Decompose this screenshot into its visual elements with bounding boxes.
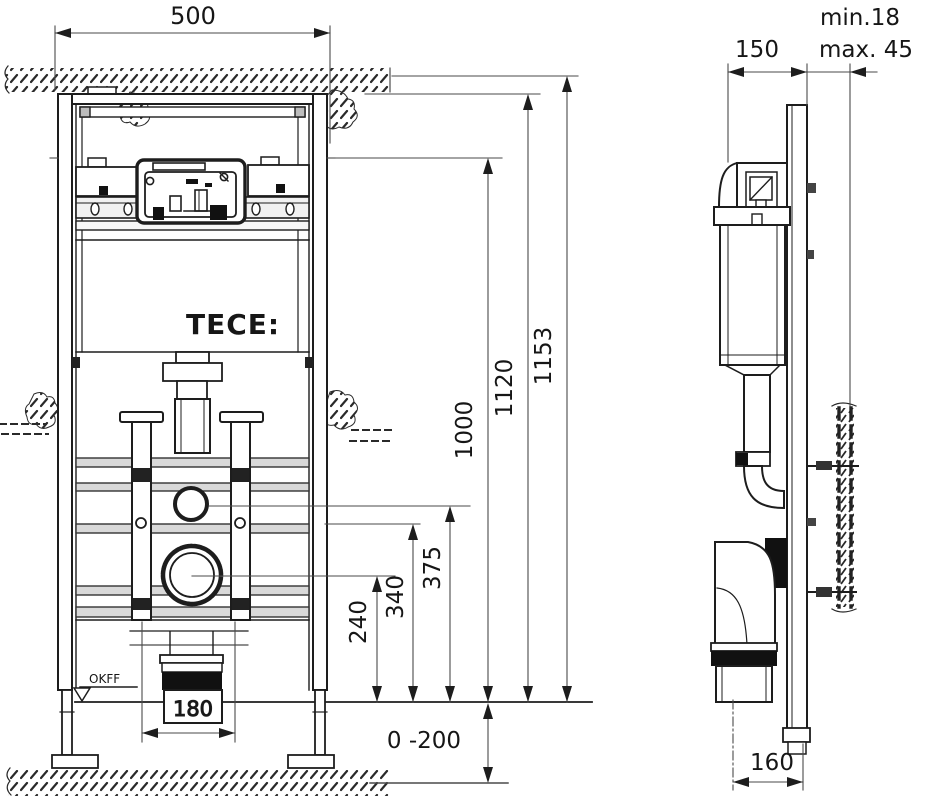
installation-frame-drawing: TECE: — [0, 0, 932, 800]
flush-pipe-side — [736, 375, 784, 508]
dim-500-label: 500 — [170, 2, 216, 30]
foot-plate-left — [52, 755, 98, 768]
dim-0-200-label: 0 -200 — [387, 728, 461, 754]
dim-375-label: 375 — [420, 546, 446, 590]
flush-pipe-front — [163, 352, 222, 453]
dim-180-label: 180 — [173, 697, 213, 721]
flush-elbow — [744, 466, 784, 508]
dim-1120-label: 1120 — [492, 359, 518, 418]
tank-body — [720, 225, 785, 365]
supply-connection-circle — [175, 488, 207, 520]
soil-pipe — [716, 666, 772, 702]
cistern-side — [714, 163, 790, 375]
top-rail-tab — [88, 87, 116, 94]
drain-bend-side — [711, 538, 787, 702]
wall-break-left — [0, 393, 58, 434]
dim-240-label: 240 — [346, 600, 372, 644]
drain-bend — [715, 542, 775, 645]
tank-shoulder — [719, 163, 737, 210]
floor-hatch-band — [8, 770, 390, 796]
side-view: 150 min.18 max. 45 160 — [711, 5, 913, 790]
side-foot — [783, 728, 810, 742]
dim-1153-label: 1153 — [531, 327, 557, 386]
drain-opening-inner — [170, 553, 214, 597]
okff-label: OKFF — [89, 672, 120, 686]
left-rail — [58, 94, 72, 690]
wall-break-right — [322, 391, 393, 441]
dim-160-label: 160 — [750, 750, 794, 776]
finished-wall-band — [832, 403, 856, 612]
dim-150-label: 150 — [735, 37, 779, 63]
tece-logo: TECE: — [186, 308, 280, 341]
drain-connector: 180 — [160, 632, 223, 723]
wall-min-label: min.18 — [820, 5, 900, 31]
front-view: TECE: — [0, 2, 592, 796]
inspection-box — [137, 160, 245, 223]
upper-mounting-strip — [80, 107, 305, 117]
dim-1000-label: 1000 — [452, 401, 478, 460]
flush-unit-assembly — [76, 157, 309, 240]
level-triangle-icon — [74, 688, 90, 701]
wall-max-label: max. 45 — [819, 37, 913, 63]
floor-level-mark: OKFF — [74, 672, 137, 701]
right-rail — [313, 94, 327, 690]
top-cross-rail — [58, 94, 327, 104]
technical-drawing-page: TECE: — [0, 0, 932, 800]
foot-plate-right — [288, 755, 334, 768]
dim-340-label: 340 — [383, 575, 409, 619]
